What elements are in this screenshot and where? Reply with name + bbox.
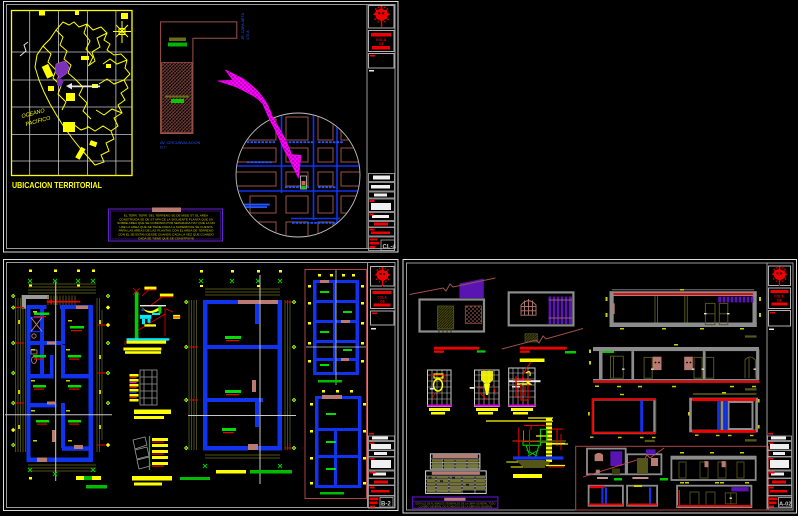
svg-text:DE: DE: [380, 300, 385, 304]
svg-text:B-2: B-2: [381, 502, 391, 508]
svg-text:CL-4: CL-4: [383, 245, 397, 251]
svg-text:N.T.: N.T.: [160, 146, 167, 150]
svg-text:470 A: 470 A: [246, 30, 250, 40]
svg-text:CADA SE TIENE QUE SE CONSTRUYE: CADA SE TIENE QUE SE CONSTRUYE: [138, 236, 194, 240]
svg-text:UBICACION TERRITORIAL: UBICACION TERRITORIAL: [12, 180, 102, 190]
svg-text:AV. CIRCUNVALACION: AV. CIRCUNVALACION: [160, 141, 200, 145]
svg-text:DE: DE: [379, 42, 385, 46]
svg-text:A-02: A-02: [779, 502, 792, 508]
svg-text:DE: DE: [777, 299, 782, 303]
svg-text:JR. CAPA AETA: JR. CAPA AETA: [241, 12, 245, 40]
svg-text:CUADRO GENERAL DE ACABADOS DE: CUADRO GENERAL DE ACABADOS DE LA OBRA EN…: [419, 505, 493, 509]
